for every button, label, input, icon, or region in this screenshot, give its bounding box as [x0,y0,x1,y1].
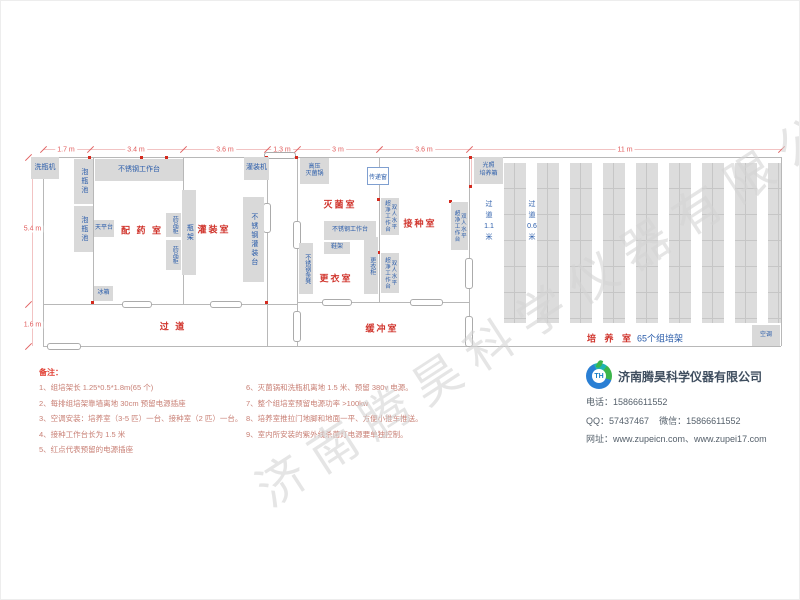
bottle-washer: 洗瓶机 [31,157,59,179]
dimension-tick [25,301,32,308]
notes-header: 备注： [39,367,579,378]
wall-segment [781,157,782,346]
filling-machine: 灌装机 [244,157,269,180]
power-outlet-dot [295,156,298,159]
dimension-label: 5.4 m [22,226,44,233]
soak-pool-2: 泡瓶池 [74,206,93,252]
door [293,311,301,342]
wall-segment [267,157,268,346]
notes-column-2: 6、灭菌锅和洗瓶机离地 1.5 米、预留 380v 电源。7、整个组培室预留电源… [246,382,496,460]
dimension-tick [778,146,785,153]
floor-plan-sheet: 1.7 m3.4 m3.6 m1.3 m3 m3.6 m11 m5.4 m1.6… [0,0,800,600]
note-item: 1、组培架长 1.25*0.5*1.8m(65 个) [39,382,246,393]
door [465,258,473,289]
ss-bench: 不锈钢条凳 [299,243,313,294]
tissue-culture-rack [768,163,781,323]
note-item: 2、每排组培架靠墙离地 30cm 预留电源插座 [39,398,246,409]
ss-filling-table: 不锈钢灌装台 [243,197,264,282]
dimension-label: 1.7 m [55,146,77,153]
pass-window: 传递窗 [367,167,389,185]
soak-pool-1: 泡瓶池 [74,159,93,204]
door [210,301,242,308]
note-item: 4、接种工作台长为 1.5 米 [39,429,246,440]
leaf-icon [596,359,603,368]
wall-segment [43,346,781,347]
note-item: 6、灭菌锅和洗瓶机离地 1.5 米、预留 380v 电源。 [246,382,496,393]
dimension-label: 3.6 m [413,146,435,153]
company-website-line: 网址：www.zupeicn.com、www.zupei17.com [586,432,796,445]
power-outlet-dot [469,156,472,159]
dimension-label: 3.4 m [125,146,147,153]
company-qq-wechat-line: QQ：57437467微信：15866611552 [586,414,796,427]
light-incubator: 光照 培养箱 [474,157,503,184]
dimension-line-mini [471,158,472,187]
room-label-dispensing-room: 配 药 室 [121,224,163,237]
culture-room-label: 培 养 室65个组培架 [587,332,683,345]
logo-monogram: TH [592,369,606,383]
phone-label: 电话： [586,397,613,407]
power-outlet-dot [377,198,380,201]
notes-column-1: 1、组培架长 1.25*0.5*1.8m(65 个)2、每排组培架靠墙离地 30… [39,382,246,460]
tissue-culture-rack [537,163,559,323]
culture-room-name: 培 养 室 [587,334,634,344]
fridge: 冰箱 [94,286,113,301]
wechat-label: 微信： [659,416,686,426]
web-value: www.zupeicn.com、www.zupei17.com [613,434,767,444]
dimension-label: 3.6 m [214,146,236,153]
wechat-value: 15866611552 [686,416,740,426]
laminar-flow-bench-1: 双人水平 超净工作台 [381,198,399,235]
notes-section: 备注： 1、组培架长 1.25*0.5*1.8m(65 个)2、每排组培架靠墙离… [39,367,579,460]
room-label-sterilization-room: 灭菌室 [323,198,356,211]
wall-segment [43,157,44,346]
room-label-corridor: 过 道 [160,320,187,333]
phone-value: 15866611552 [613,397,667,407]
door [410,299,443,306]
company-logo: TH [586,363,612,389]
dimension-line-top [43,149,781,150]
aisle-1-1m: 过 道 1.1 米 [484,199,494,243]
ss-workbench-prep: 不锈钢工作台 [95,159,183,181]
power-outlet-dot [469,185,472,188]
door [263,203,271,233]
qq-label: QQ： [586,416,609,426]
note-item: 5、红点代表预留的电源插座 [39,444,246,455]
room-label-inoculation-room: 接种室 [403,217,436,230]
web-label: 网址： [586,434,613,444]
bottle-rack: 瓶架 [182,190,196,275]
dimension-label: 1.6 m [22,322,44,329]
qq-value: 57437467 [609,416,649,426]
note-item: 8、培养室推拉门地脚和地面一平、方便小推车推送。 [246,413,496,424]
dimension-label: 11 m [615,146,634,153]
tissue-culture-rack [570,163,592,323]
autoclave: 高压 灭菌锅 [300,158,329,184]
company-info: TH 济南腾昊科学仪器有限公司 电话：15866611552 QQ：574374… [586,363,796,451]
tissue-culture-rack [504,163,526,323]
tissue-culture-rack [669,163,691,323]
laminar-flow-bench-2: 双人水平 超净工作台 [381,253,399,293]
door [122,301,152,308]
medicine-cabinet-1: 药品柜 [166,213,181,237]
air-conditioner: 空调 [752,325,780,346]
door [322,299,352,306]
dimension-tick [25,343,32,350]
medicine-cabinet-2: 药品柜 [166,240,181,270]
note-item: 9、室内所安装的紫外线杀菌灯电源要单独控制。 [246,429,496,440]
room-label-buffer-room: 缓冲室 [365,322,398,335]
note-item: 7、整个组培室预留电源功率 >100kw [246,398,496,409]
culture-room-racks [470,158,781,346]
company-phone-line: 电话：15866611552 [586,395,796,408]
room-label-changing-room: 更衣室 [319,272,352,285]
wardrobe: 更衣柜 [364,237,378,294]
tissue-culture-rack [735,163,757,323]
power-outlet-dot [91,301,94,304]
note-item: 3、空调安装：培养室（3-5 匹）一台、接种室（2 匹）一台。 [39,413,246,424]
culture-room-rack-count: 65个组培架 [637,334,683,344]
wall-segment [43,304,297,305]
company-name: 济南腾昊科学仪器有限公司 [618,368,762,385]
dimension-label: 3 m [330,146,346,153]
door [465,316,473,347]
dimension-line-left [32,157,33,346]
room-label-filling-room: 灌装室 [197,223,230,236]
balance-table: 天平台 [94,220,114,237]
tissue-culture-rack [603,163,625,323]
shoe-rack: 鞋架 [324,242,350,254]
laminar-flow-bench-3: 双人水平 超净工作台 [451,202,468,250]
power-outlet-dot [265,301,268,304]
door [47,343,81,350]
tissue-culture-rack [702,163,724,323]
tissue-culture-rack [636,163,658,323]
aisle-0-6m: 过 道 0.6 米 [527,199,537,243]
